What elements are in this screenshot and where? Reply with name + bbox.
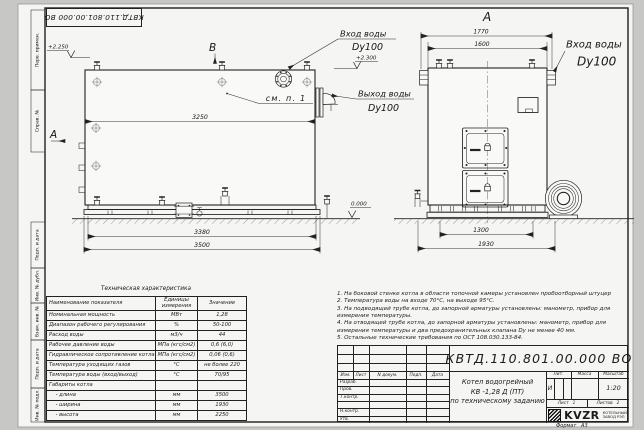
lit-label: Лит. — [546, 371, 571, 378]
row-name: Температура уходящих газов — [47, 361, 156, 371]
dim-1600: 1600 — [474, 41, 489, 48]
title-block: Изм. Лист N докум. Подп. Дата Разраб. Пр… — [337, 345, 628, 422]
table-row: Расход водым3/ч44 — [47, 331, 247, 341]
product-name-cell: Котел водогрейный КВ -1,28 Д (ПТ) по тех… — [449, 371, 546, 423]
table-row: Рабочее давление водыМПа (кгс/см2)0,6 (6… — [47, 341, 247, 351]
note-line: измерения температуры. — [337, 313, 629, 320]
dim-3500: 3500 — [194, 242, 210, 249]
ground-hatch-right — [394, 219, 634, 224]
inlet-dy100-text: Dy100 — [352, 42, 383, 53]
table-row: - длинамм3500 — [47, 391, 247, 401]
row-value: 2250 — [198, 411, 247, 421]
row-value: 50-100 — [198, 321, 247, 331]
col-header-name: Наименование показателя — [47, 297, 156, 311]
product-name-line1: Котел водогрейный — [462, 378, 533, 388]
row-units: МВт — [156, 311, 198, 321]
row-units: % — [156, 321, 198, 331]
dim-1930: 1930 — [478, 241, 494, 248]
logo-mark-icon — [548, 409, 561, 422]
col-header-value: Значение — [198, 297, 247, 311]
table-header-row: Наименование показателя Единицы измерени… — [47, 297, 247, 311]
row-units: МПа (кгс/см2) — [156, 341, 198, 351]
row-razrab: Разраб. — [340, 380, 357, 385]
drawing-sheet-page: Перв. примен. Справ. № Подп. и дата Инв.… — [0, 0, 644, 430]
flanged-hatch-box — [174, 203, 194, 218]
margin-stamp-vzam-inv: Взам. инв. № — [35, 306, 41, 337]
ground-hatch-left — [72, 219, 360, 224]
row-name: Расход воды — [47, 331, 156, 341]
note-line: 2. Температура воды на входе 70°С, на вы… — [337, 298, 629, 305]
level-2250-text: +2.250 — [48, 45, 69, 51]
view-a-title: А — [482, 10, 491, 24]
table-row: Габариты котла — [47, 381, 247, 391]
lit-value: И — [546, 378, 554, 399]
outlet-flange-left — [420, 71, 429, 86]
tech-characteristics-table: Наименование показателя Единицы измерени… — [46, 296, 247, 421]
row-value: 1,28 — [198, 311, 247, 321]
note-line: 4. На отводящей трубе котла, до запорной… — [337, 320, 629, 327]
dim-1770: 1770 — [473, 29, 488, 36]
margin-stamp-podp-data-1: Подп. и дата — [35, 229, 41, 260]
logo-text: KVZR — [564, 409, 599, 422]
sheet-label: Лист — [558, 401, 569, 406]
table-row: - ширинамм1930 — [47, 401, 247, 411]
row-name: - высота — [47, 411, 156, 421]
note-line: измерения температуры и два предохраните… — [337, 328, 629, 335]
product-name-line2: КВ -1,28 Д (ПТ) — [471, 388, 524, 398]
outlet-dy100-text: Dy100 — [368, 103, 399, 114]
row-value: не более 220 — [198, 361, 247, 371]
logo-subtitle: КОТЕЛЬНЫЙ ЗАВОД РЭП — [603, 411, 627, 419]
row-units: мм — [156, 411, 198, 421]
inlet-water-text: Вход воды — [340, 29, 387, 39]
note-line: 5. Остальные технические требования по О… — [337, 335, 629, 342]
inlet-flange-icon — [275, 71, 291, 87]
sheet-number: 1 — [573, 401, 576, 406]
margin-stamp-inv-podl: Инв. № подл. — [35, 389, 41, 421]
technical-notes: 1. На боковой стенке котла в области топ… — [337, 291, 629, 342]
level-0000-text: 0.000 — [351, 202, 367, 208]
row-name: Номинальная мощность — [47, 311, 156, 321]
row-value: 1930 — [198, 401, 247, 411]
masshtab-value: 1:20 — [598, 378, 629, 399]
margin-stamp-podp-data-2: Подп. и дата — [35, 348, 41, 379]
row-name: - ширина — [47, 401, 156, 411]
view-b-label: В — [209, 42, 216, 54]
sheets-cell: Листов 2 — [587, 399, 629, 407]
inlet-flange-right — [547, 71, 556, 86]
title-block-doc-number: КВТД.110.801.00.000 ВО — [449, 346, 629, 371]
dim-3250: 3250 — [192, 114, 208, 121]
massa-label: Масса — [571, 371, 598, 378]
table-row: - высотамм2250 — [47, 411, 247, 421]
section-a-label: А — [49, 129, 57, 141]
inlet-water-text: Вход воды — [566, 40, 622, 51]
row-value — [198, 381, 247, 391]
row-name: Температура воды (вход/выход) — [47, 371, 156, 381]
row-name: Гидравлическое сопротивление котла — [47, 351, 156, 361]
table-row: Гидравлическое сопротивление котлаМПа (к… — [47, 351, 247, 361]
row-units: МПа (кгс/см2) — [156, 351, 198, 361]
col-podp: Подп. — [406, 371, 426, 379]
note-line: 1. На боковой стенке котла в области топ… — [337, 291, 629, 298]
row-name: - длина — [47, 391, 156, 401]
callout-label: см. п. 1 — [266, 94, 307, 103]
table-row: Диапазон рабочего регулирования%50-100 — [47, 321, 247, 331]
sheets-label: Листов — [597, 401, 613, 406]
col-data: Дата — [426, 371, 449, 379]
col-ndoc: N докум. — [369, 371, 406, 379]
row-tkontr: Т.контр. — [340, 395, 359, 400]
format-label: Формат А3 — [556, 423, 588, 429]
dim-3380: 3380 — [194, 229, 210, 236]
margin-stamp-perv-primen: Перв. примен. — [35, 33, 41, 68]
masshtab-label: Масштаб — [598, 371, 629, 378]
tech-table-title: Техническая характеристика — [46, 286, 246, 292]
product-name-line3: по техническому заданию — [450, 397, 545, 407]
doc-number-stamp: КВТД.110.801.00.000 ВО — [46, 8, 142, 27]
row-value: 0,6 (6,0) — [198, 341, 247, 351]
row-value: 70/95 — [198, 371, 247, 381]
dim-1300: 1300 — [473, 227, 489, 234]
margin-stamp-sprav-no: Справ. № — [35, 110, 41, 133]
row-name: Рабочее давление воды — [47, 341, 156, 351]
row-units: мм — [156, 391, 198, 401]
row-value: 44 — [198, 331, 247, 341]
note-line: 3. На подводящей трубе котла, до запорно… — [337, 306, 629, 313]
row-name: Габариты котла — [47, 381, 156, 391]
boiler-body-side — [85, 70, 315, 205]
row-utv: Утв. — [340, 417, 349, 422]
col-izm: Изм. — [338, 371, 353, 379]
row-units: °С — [156, 361, 198, 371]
row-name: Диапазон рабочего регулирования — [47, 321, 156, 331]
row-nkontr: Н.контр. — [340, 409, 359, 414]
row-units — [156, 381, 198, 391]
sheet-cell: Лист 1 — [546, 399, 587, 407]
row-value: 0,06 (0,6) — [198, 351, 247, 361]
sheets-number: 2 — [617, 401, 620, 406]
row-units: м3/ч — [156, 331, 198, 341]
margin-stamp-inv-dubl: Инв. № дубл. — [35, 270, 41, 301]
logo-subtitle-line2: ЗАВОД РЭП — [603, 415, 627, 419]
inlet-dy100-text: Dy100 — [577, 55, 617, 69]
col-list: Лист — [353, 371, 369, 379]
table-row: Температура уходящих газов°Сне более 220 — [47, 361, 247, 371]
company-logo: KVZR КОТЕЛЬНЫЙ ЗАВОД РЭП — [546, 407, 629, 423]
level-2300-text: +2.300 — [356, 56, 377, 62]
outlet-water-text: Выход воды — [358, 89, 411, 99]
table-row: Номинальная мощностьМВт1,28 — [47, 311, 247, 321]
col-header-units-line2: измерения — [157, 304, 196, 310]
row-units: мм — [156, 401, 198, 411]
row-value: 3500 — [198, 391, 247, 401]
col-header-units: Единицы измерения — [156, 297, 198, 311]
table-row: Температура воды (вход/выход)°С70/95 — [47, 371, 247, 381]
row-prov: Пров. — [340, 387, 353, 392]
doc-number-stamp-text: КВТД.110.801.00.000 ВО — [44, 13, 143, 22]
row-units: °С — [156, 371, 198, 381]
